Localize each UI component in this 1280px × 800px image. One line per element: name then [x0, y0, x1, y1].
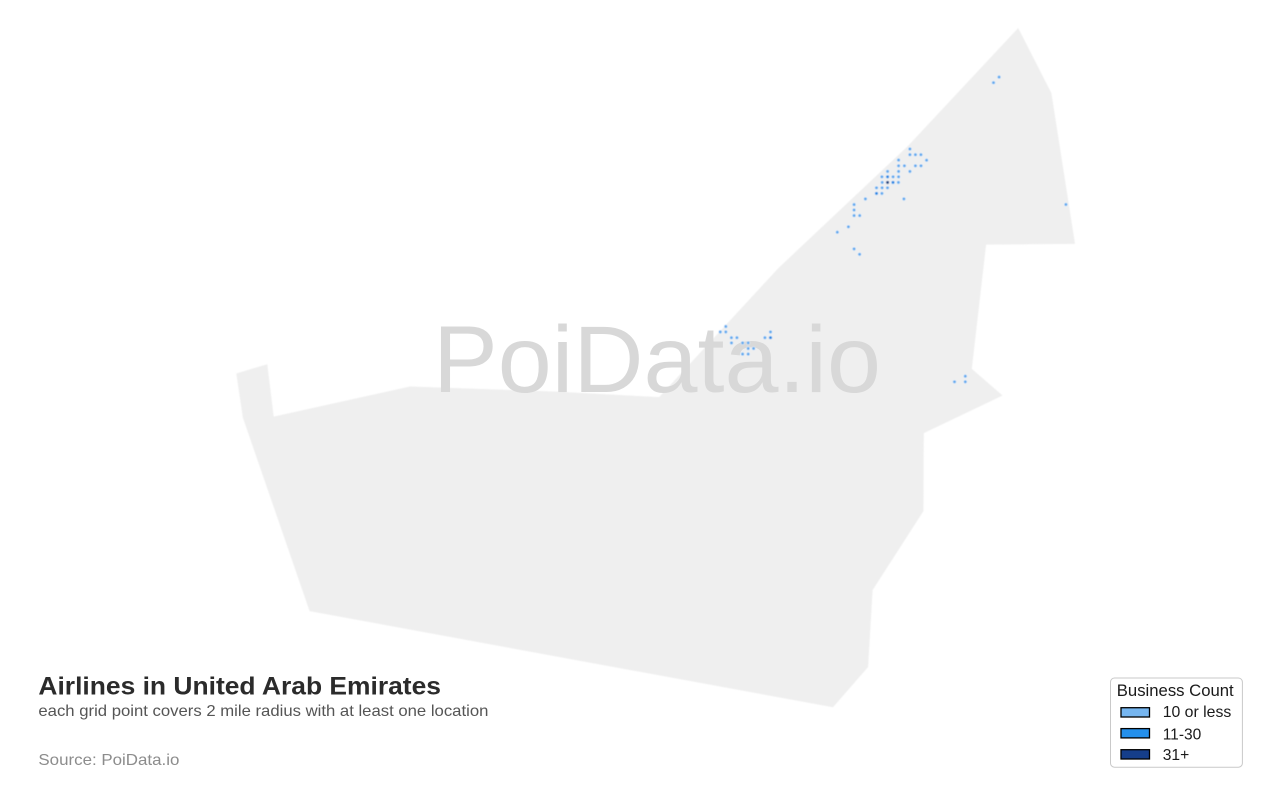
svg-text:PoiData.io: PoiData.io [433, 307, 881, 413]
svg-text:31+: 31+ [1163, 747, 1190, 764]
svg-text:Airlines in United Arab Emirat: Airlines in United Arab Emirates [38, 674, 441, 701]
svg-text:10 or less: 10 or less [1163, 704, 1232, 721]
svg-text:Source: PoiData.io: Source: PoiData.io [38, 752, 179, 769]
svg-text:each grid point covers 2 mile: each grid point covers 2 mile radius wit… [38, 703, 488, 720]
svg-text:11-30: 11-30 [1163, 727, 1202, 744]
svg-text:Business Count: Business Count [1117, 682, 1234, 700]
